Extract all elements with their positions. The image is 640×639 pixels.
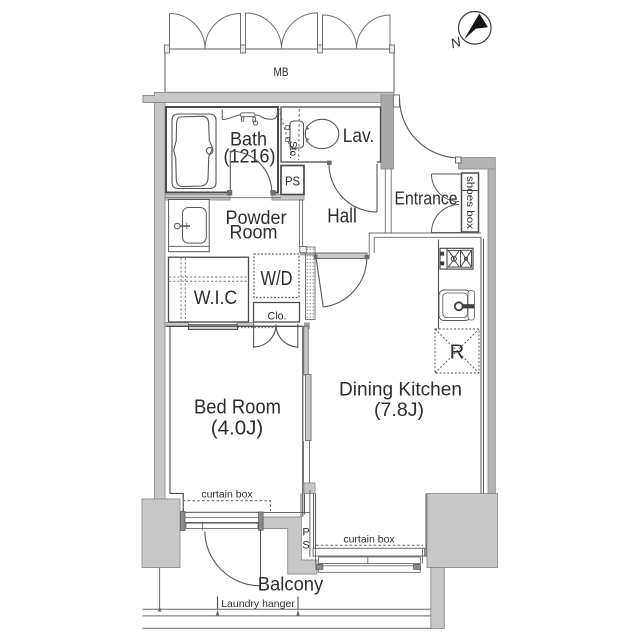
svg-text:W.I.C: W.I.C (194, 288, 238, 309)
svg-text:P: P (302, 527, 309, 539)
svg-text:(1216): (1216) (224, 147, 276, 168)
svg-text:Lav.: Lav. (343, 125, 375, 147)
svg-text:W/D: W/D (261, 268, 293, 290)
svg-text:Laundry hanger: Laundry hanger (221, 598, 295, 610)
svg-text:R: R (450, 342, 464, 364)
svg-text:MB: MB (274, 67, 289, 79)
svg-text:Sto.: Sto. (287, 141, 298, 159)
svg-text:Dining Kitchen: Dining Kitchen (339, 379, 462, 401)
svg-text:curtain box: curtain box (201, 489, 253, 501)
svg-text:Hall: Hall (327, 206, 357, 228)
svg-text:Room: Room (230, 223, 278, 244)
svg-text:S: S (302, 540, 309, 552)
svg-text:Bed Room: Bed Room (194, 397, 281, 419)
svg-text:curtain box: curtain box (343, 534, 395, 546)
svg-text:(7.8J): (7.8J) (374, 399, 424, 421)
svg-text:shoes box: shoes box (464, 176, 476, 230)
svg-text:PS: PS (285, 174, 300, 189)
svg-text:Entrance: Entrance (395, 189, 458, 209)
svg-text:(4.0J): (4.0J) (211, 418, 264, 440)
svg-text:Balcony: Balcony (258, 574, 324, 596)
svg-text:Clo.: Clo. (268, 311, 287, 323)
